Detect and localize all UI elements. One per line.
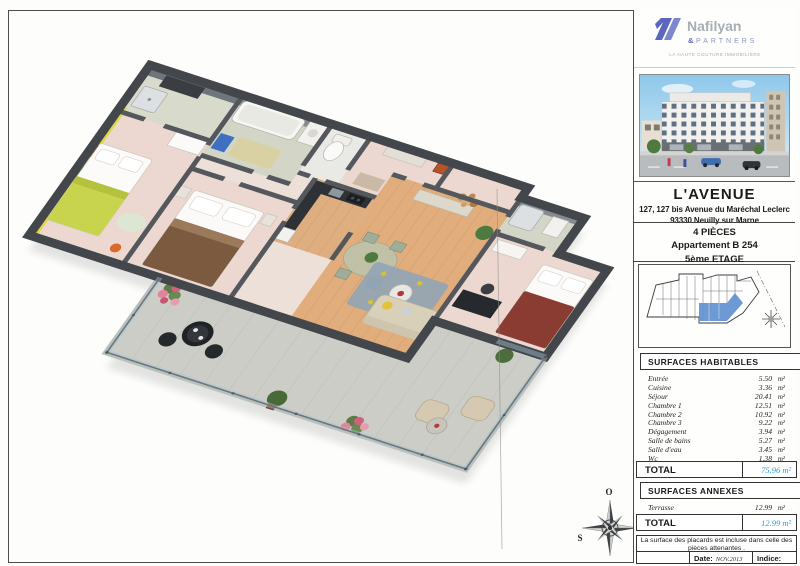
surface-row: Chambre 2 10.92 m² (648, 410, 785, 419)
side-window (645, 125, 651, 131)
title-block-panel: Nafilyan & PARTNERS LA HAUTE COUTURE IMM… (633, 10, 795, 563)
sidewalk (640, 151, 789, 155)
surface-room-value: 10.92 (746, 410, 772, 419)
pedestrian (683, 159, 686, 167)
surface-room-value: 20.41 (746, 392, 772, 401)
surface-room-label: Cuisine (648, 383, 746, 392)
unit-apartment-number: Appartement B 254 (634, 239, 795, 252)
surface-row: Salle de bains 5.27 m² (648, 436, 785, 445)
logo-tagline: LA HAUTE COUTURE IMMOBILIÈRE (669, 51, 761, 57)
surface-row: Chambre 1 12.51 m² (648, 401, 785, 410)
surfaces-habitables-header: SURFACES HABITABLES (640, 353, 800, 370)
building-facade (662, 102, 765, 144)
floorplan-3d-render: O N S E (9, 11, 633, 562)
indice-cell: Indice: (752, 552, 796, 563)
building-photo (639, 74, 790, 177)
surface-row: Cuisine 3.36 m² (648, 383, 785, 392)
surface-room-label: Chambre 2 (648, 410, 746, 419)
nafilyan-logo: Nafilyan & PARTNERS LA HAUTE COUTURE IMM… (651, 12, 779, 62)
side-window (654, 125, 660, 131)
surface-room-value: 9.22 (746, 418, 772, 427)
surfaces-rows: Entrée 5.50 m² Cuisine 3.36 m² Séjour 20… (634, 372, 795, 463)
surface-room-value: 3.94 (746, 427, 772, 436)
keyplan-drawing (638, 264, 791, 348)
total-habitables-row: TOTAL 75.96 m² (636, 461, 797, 478)
keyplan-box (634, 262, 795, 350)
keyplan-compass (762, 310, 780, 328)
surface-row: Entrée 5.50 m² (648, 374, 785, 383)
building-photo-frame (634, 70, 795, 182)
surface-room-unit: m² (772, 446, 785, 454)
tree (684, 143, 694, 153)
unit-rooms-count: 4 PIÈCES (634, 226, 795, 239)
surface-room-label: Salle d'eau (648, 445, 746, 454)
surface-room-value: 5.27 (746, 436, 772, 445)
compass-star (582, 500, 633, 556)
surface-room-unit: m² (772, 384, 785, 392)
surface-room-unit: m² (772, 419, 785, 427)
surface-room-unit: m² (772, 402, 785, 410)
annex-row: Terrasse 12.99 m² (648, 503, 785, 512)
annex-unit: m² (772, 504, 785, 512)
surface-room-label: Dégagement (648, 427, 746, 436)
total-annexes-row: TOTAL 12.99 m² (636, 514, 797, 531)
surface-room-unit: m² (772, 428, 785, 436)
annexes-total-label: TOTAL (637, 515, 742, 530)
storefront (697, 144, 711, 150)
surface-room-label: Salle de bains (648, 436, 746, 445)
date-indice-row: Date:NOV.2013 Indice: (636, 551, 797, 564)
surface-room-label: Chambre 1 (648, 401, 746, 410)
total-label: TOTAL (637, 462, 742, 477)
pedestrian (668, 158, 671, 166)
annexes-rows: Terrasse 12.99 m² (634, 501, 795, 512)
surface-row: Salle d'eau 3.45 m² (648, 445, 785, 454)
logo-brand-text: Nafilyan (687, 18, 741, 34)
photo-tower (766, 91, 785, 152)
date-row-spacer (637, 552, 689, 563)
date-cell: Date:NOV.2013 (689, 552, 752, 563)
total-value: 75.96 m² (742, 462, 796, 477)
surface-row: Séjour 20.41 m² (648, 392, 785, 401)
compass-letter-east: E (609, 561, 615, 562)
annex-label: Terrasse (648, 503, 746, 512)
surface-room-unit: m² (772, 437, 785, 445)
compass-letter-west: O (605, 487, 612, 497)
compass-rose: O N S E (577, 487, 633, 562)
logo-mark-icon (655, 18, 681, 40)
storefront (729, 144, 743, 150)
building-top-floor (670, 93, 751, 103)
tree (753, 144, 763, 154)
surface-room-unit: m² (772, 375, 785, 383)
logo-partners-text: PARTNERS (696, 38, 757, 45)
surface-room-label: Chambre 3 (648, 418, 746, 427)
surface-room-label: Entrée (648, 374, 746, 383)
annexes-total-value: 12.99 m² (742, 515, 796, 530)
surface-row: Chambre 3 9.22 m² (648, 418, 785, 427)
surface-row: Dégagement 3.94 m² (648, 427, 785, 436)
surface-room-value: 3.36 (746, 383, 772, 392)
annex-value: 12.99 (746, 503, 772, 512)
surface-room-value: 3.45 (746, 445, 772, 454)
tree (647, 139, 661, 153)
cloud (662, 84, 694, 94)
project-title: L'AVENUE (634, 186, 795, 203)
compass-letter-south: S (577, 533, 582, 543)
surface-room-unit: m² (772, 411, 785, 419)
cloud (732, 80, 756, 88)
surface-room-value: 12.51 (746, 401, 772, 410)
date-label: Date: (694, 554, 713, 563)
surface-room-unit: m² (772, 393, 785, 401)
surface-room-value: 5.50 (746, 374, 772, 383)
unit-info-box: 4 PIÈCES Appartement B 254 5ème ETAGE (634, 222, 795, 262)
address-line1: 127, 127 bis Avenue du Maréchal Leclerc (634, 205, 795, 216)
logo-ampersand: & (688, 36, 694, 45)
logo-block: Nafilyan & PARTNERS LA HAUTE COUTURE IMM… (634, 12, 795, 68)
plan-sheet: O N S E Nafilyan & PARTNERS LA HAUTE COU… (0, 0, 800, 566)
surfaces-annexes-header: SURFACES ANNEXES (640, 482, 800, 499)
storefront (670, 144, 684, 150)
date-value: NOV.2013 (716, 556, 743, 563)
surface-room-label: Séjour (648, 392, 746, 401)
